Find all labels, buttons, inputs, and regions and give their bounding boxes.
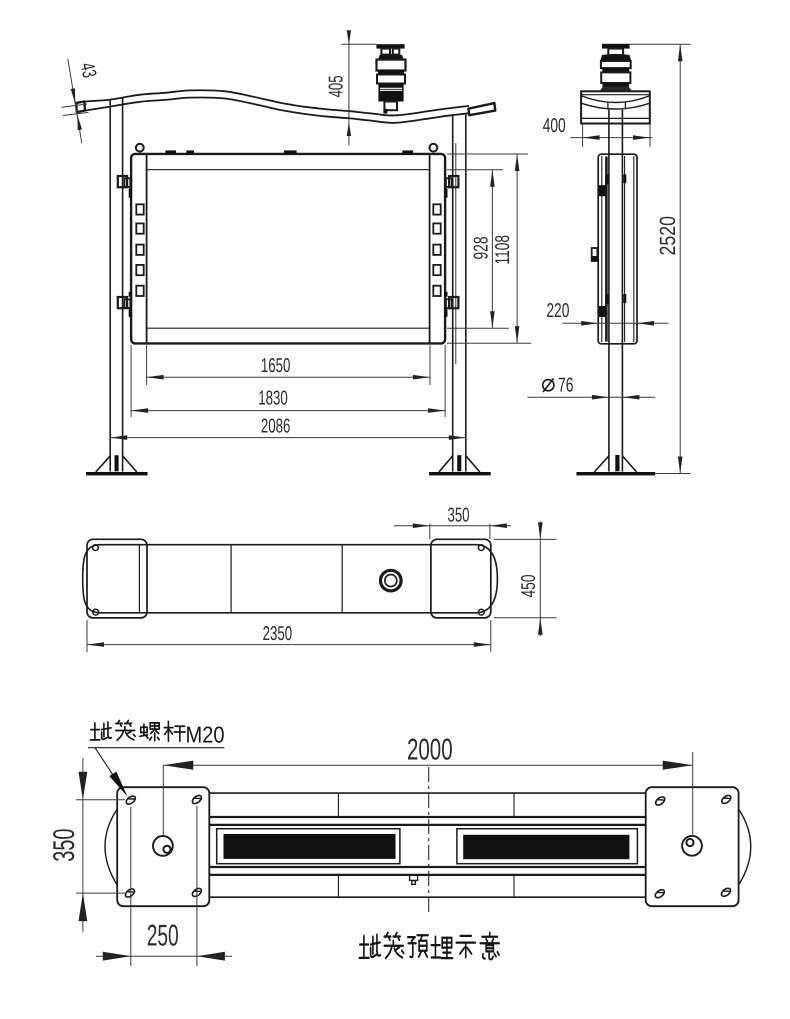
svg-text:350: 350 [48,829,81,862]
svg-text:76: 76 [558,375,574,397]
svg-text:2000: 2000 [407,734,453,767]
svg-text:250: 250 [147,920,179,953]
svg-text:450: 450 [518,575,540,598]
svg-text:405: 405 [325,75,347,97]
svg-text:M20: M20 [186,722,225,748]
svg-text:1830: 1830 [258,388,288,410]
svg-text:1108: 1108 [492,235,514,264]
svg-text:220: 220 [546,300,569,322]
svg-text:2520: 2520 [655,216,680,256]
svg-text:1650: 1650 [261,355,291,377]
svg-text:928: 928 [470,237,492,260]
svg-text:350: 350 [448,504,470,526]
svg-text:2086: 2086 [261,416,291,438]
svg-text:400: 400 [543,115,566,137]
svg-text:2350: 2350 [263,623,293,645]
